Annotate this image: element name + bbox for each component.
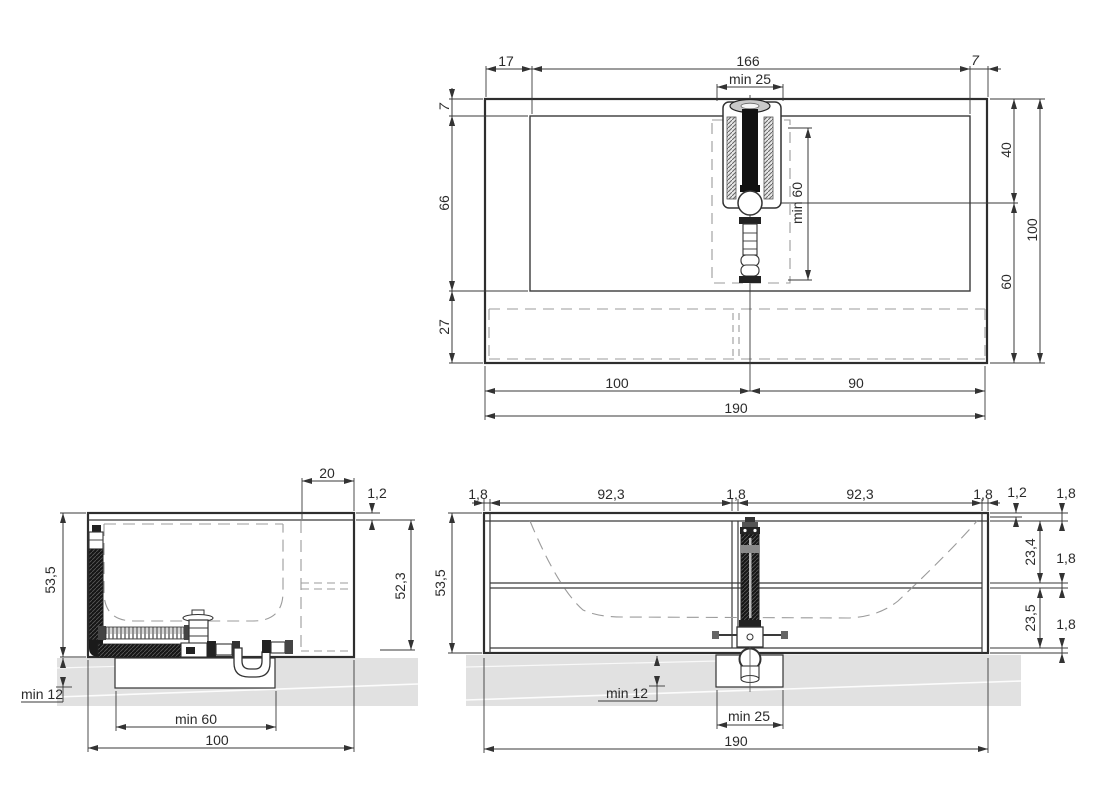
dim-label-plan-bottom-right: 90 [848, 376, 864, 390]
dim-label-plan-apron: 27 [437, 319, 451, 335]
dim-label-plan-right-upper: 40 [999, 142, 1013, 158]
dim-label-plan-basin-width: 166 [736, 54, 759, 68]
dim-label-front-recess-width: min 25 [728, 709, 770, 723]
dim-label-front-bay-left: 92,3 [597, 487, 624, 501]
dim-label-plan-right-lower: 60 [999, 274, 1013, 290]
dim-label-side-height: 53,5 [43, 566, 57, 593]
dim-label-plan-tap-width: min 25 [729, 72, 771, 86]
technical-drawing: 17 166 7 min 25 7 66 27 40 60 100 min 60… [0, 0, 1110, 785]
dim-label-front-end-panel-left: 1,8 [468, 487, 487, 501]
dim-label-plan-rim-front: 7 [437, 103, 451, 111]
dim-label-plan-basin-depth: 66 [437, 195, 451, 211]
dim-label-front-top-panel: 1,2 [1007, 485, 1026, 499]
dim-label-front-rail-mid: 1,8 [1056, 551, 1075, 565]
dim-label-plan-bottom-left: 100 [605, 376, 628, 390]
dim-label-front-recess-depth: min 12 [606, 686, 648, 700]
dim-label-front-total-width: 190 [724, 734, 747, 748]
dim-label-side-top-panel: 1,2 [367, 486, 386, 500]
dim-label-front-rail-bottom: 1,8 [1056, 617, 1075, 631]
dim-label-plan-total-width: 190 [724, 401, 747, 415]
dim-label-front-end-panel-right: 1,8 [973, 487, 992, 501]
drain-plumbing-side [89, 525, 293, 677]
dim-label-plan-top-right: 7 [971, 53, 979, 67]
dim-label-side-recess-width: min 60 [175, 712, 217, 726]
dim-label-front-upper-shelf: 23,4 [1023, 538, 1037, 565]
dim-label-side-total-depth: 100 [205, 733, 228, 747]
dim-label-front-rail-top: 1,8 [1056, 486, 1075, 500]
plan-view-linework [449, 66, 1045, 420]
dim-label-side-recess-depth: min 12 [21, 687, 63, 701]
dim-label-plan-top-left: 17 [498, 54, 514, 68]
dim-label-front-lower-shelf: 23,5 [1023, 604, 1037, 631]
dim-label-side-shelf: 20 [319, 466, 335, 480]
dim-label-plan-tap-depth: min 60 [790, 182, 804, 224]
dim-label-front-mid-panel: 1,8 [726, 487, 745, 501]
tap-assembly-plan [723, 100, 781, 284]
dim-label-front-height: 53,5 [433, 569, 447, 596]
side-view-linework [21, 478, 418, 752]
drawing-linework [0, 0, 1110, 785]
dim-label-plan-right-total: 100 [1025, 218, 1039, 241]
dim-label-side-inner-height: 52,3 [393, 572, 407, 599]
dim-label-front-bay-right: 92,3 [846, 487, 873, 501]
